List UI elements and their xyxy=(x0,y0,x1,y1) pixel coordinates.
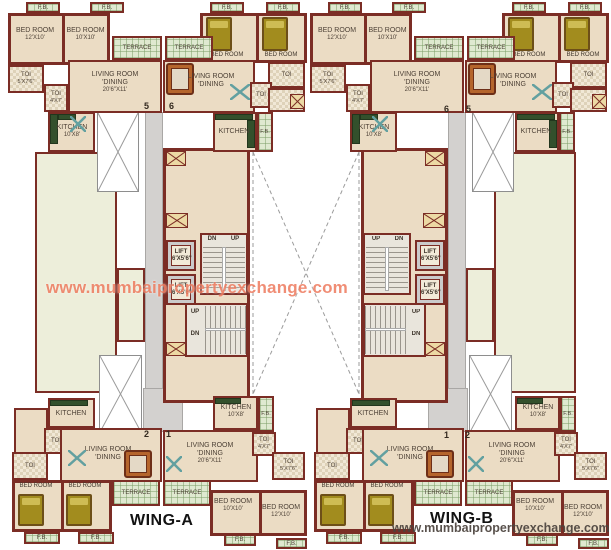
unit-number-a1: 1 xyxy=(166,429,171,439)
unit-number-b6: 6 xyxy=(444,104,449,114)
unit-number-b1: 1 xyxy=(444,430,449,440)
unit-number-b2: 2 xyxy=(465,430,470,440)
floor-plan: LIFT6'X5'6" LIFT6'X5'6" DN UP UP DN xyxy=(0,0,611,550)
unit-number-a6: 6 xyxy=(169,101,174,111)
watermark-center: www.mumbaipropertyexchange.com xyxy=(46,278,348,298)
unit-number-b5: 5 xyxy=(466,104,471,114)
unit-number-a5: 5 xyxy=(144,101,149,111)
watermark-bottom: www.mumbaipropertyexchange.com xyxy=(392,521,610,535)
unit-numbers: 5 6 2 1 6 5 1 2 xyxy=(0,0,611,550)
unit-number-a2: 2 xyxy=(144,429,149,439)
